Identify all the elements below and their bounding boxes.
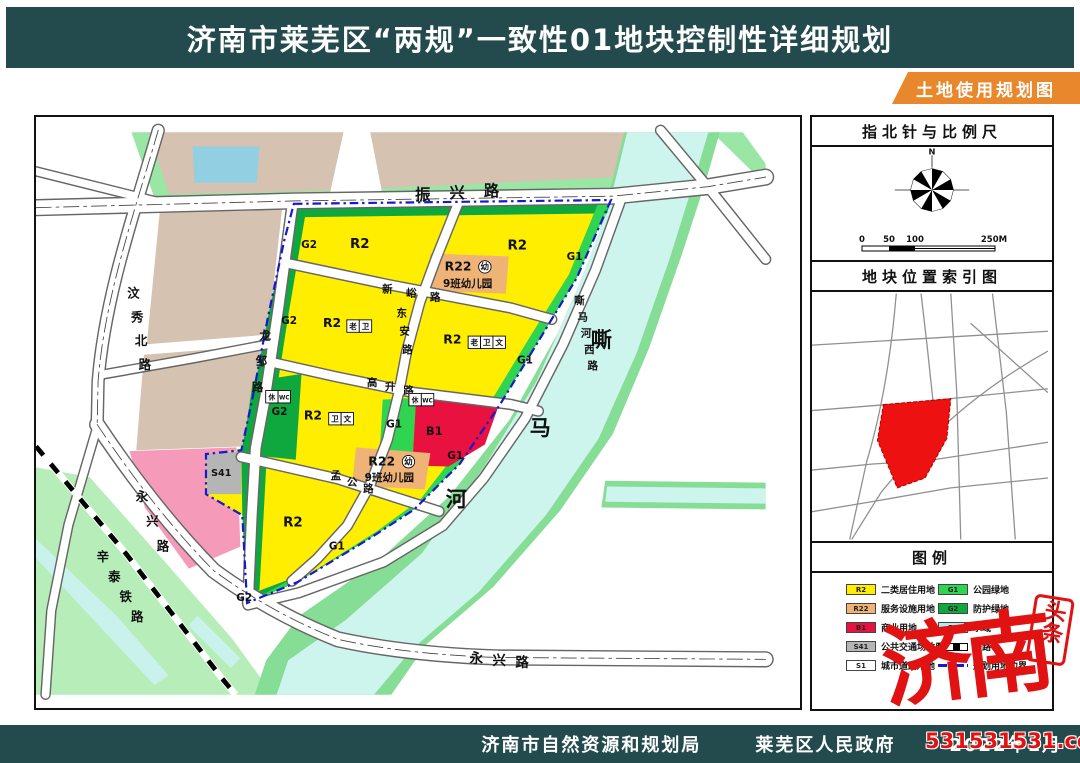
map-canvas: 振兴路汶秀北路龙邹路新峪路东安路高升路孟公路嘶马河西路永兴路永兴路辛泰铁路嘶马河…	[36, 117, 800, 708]
legend-column-right: G1公园绿地G2防护绿地E1水域铁路规划用地边界	[938, 583, 1027, 672]
road-name-char: 北	[135, 333, 148, 348]
zone-label: 河	[446, 487, 467, 512]
title-banner: 济南市莱芜区“两规”一致性01地块控制性详细规划	[6, 7, 1074, 68]
legend-swatch: S41	[846, 641, 876, 652]
facility-icon-text: 卫	[331, 415, 339, 424]
zone-label: G2	[281, 315, 297, 327]
zone-label: 9班幼儿园	[443, 277, 492, 290]
road-name-char: 马	[577, 311, 588, 323]
zone-label: 马	[530, 415, 551, 440]
facility-icon-text: 老	[349, 321, 357, 331]
road-name-char: 东	[397, 307, 408, 320]
footer-agency-right: 莱芜区人民政府	[755, 731, 895, 757]
zone-label: R2	[350, 237, 370, 252]
pond-water	[193, 147, 260, 183]
road-name-char: 汶	[127, 285, 140, 300]
north-label: N	[929, 147, 936, 156]
planning-map-page: { "header": { "title": "济南市莱芜区“两规”一致性01地…	[0, 0, 1080, 763]
road-name-char: 嘶	[574, 294, 585, 307]
legend-item-R22: R22服务设施用地	[846, 602, 953, 615]
road-name-char: 辛	[97, 549, 109, 564]
road-name-char: 铁	[120, 589, 133, 604]
zone-label: G1	[329, 541, 345, 553]
zone-label: G1	[386, 418, 402, 430]
road-name-char: 公	[347, 477, 358, 489]
legend-item-S1: S1城市道路用地	[846, 659, 953, 672]
legend-label: 规划用地边界	[973, 659, 1027, 672]
legend-label: 二类居住用地	[881, 583, 935, 596]
road-name-char: 路	[131, 609, 144, 624]
zone-label: R2	[443, 331, 461, 346]
zone-label: S41	[211, 468, 231, 479]
road-name-char: 安	[399, 325, 410, 338]
index-site-highlight	[877, 399, 950, 488]
facility-icon-text: 文	[344, 414, 352, 424]
zone-label: R2	[323, 315, 341, 330]
road-name-char: 路	[139, 357, 152, 372]
legend-item-G2: G2防护绿地	[938, 602, 1027, 615]
legend-swatch: R22	[846, 603, 876, 614]
zone-label: B1	[426, 424, 443, 438]
road-name-char: 兴	[492, 652, 506, 669]
compass-section: N 0 50 100 250M	[812, 147, 1052, 260]
legend-swatch: G2	[938, 603, 968, 614]
road-name-char: 秀	[130, 309, 144, 324]
index-section-title: 地块位置索引图	[812, 260, 1052, 292]
zone-label: G2	[301, 239, 317, 251]
legend: R2二类居住用地R22服务设施用地B1商业用地S41公共交通场站用地S1城市道路…	[812, 573, 1052, 707]
location-index-map	[812, 292, 1052, 541]
legend-item-railway: 铁路	[938, 640, 1027, 653]
compass-rose: N	[882, 147, 982, 233]
road-name-char: 高	[367, 376, 378, 389]
footer-bar: 济南市自然资源和规划局 莱芜区人民政府 2022年1月	[0, 725, 1080, 763]
road-name-char: 路	[484, 182, 500, 200]
facility-icon-text: 休	[411, 395, 419, 404]
scale-0: 0	[859, 235, 865, 245]
facility-icon-text: 卫	[483, 338, 491, 347]
road-name-char: 路	[588, 359, 599, 372]
facility-icon-text: 文	[495, 337, 503, 347]
land-use-map: 振兴路汶秀北路龙邹路新峪路东安路高升路孟公路嘶马河西路永兴路永兴路辛泰铁路嘶马河…	[34, 115, 802, 710]
zone-label: R2	[283, 516, 303, 531]
road-name-char: 龙	[258, 328, 271, 342]
road-name-char: 新	[382, 283, 393, 296]
facility-icon-text: 幼	[481, 261, 490, 273]
facility-icon-text: 休	[268, 393, 276, 402]
sidebar: 指北针与比例尺 N 0 50 100 250M 地块位置索引图	[810, 115, 1054, 711]
zone-label: R22	[368, 454, 395, 469]
road-name-char: 兴	[146, 514, 159, 529]
road-name-char: 路	[402, 343, 413, 356]
road-name-char: 路	[157, 538, 170, 553]
scale-50: 50	[883, 235, 895, 245]
legend-column-left: R2二类居住用地R22服务设施用地B1商业用地S41公共交通场站用地S1城市道路…	[846, 583, 953, 672]
legend-swatch	[938, 643, 968, 651]
road-name-char: 路	[363, 482, 374, 495]
facility-icon-text: WC	[422, 398, 433, 404]
legend-item-B1: B1商业用地	[846, 621, 953, 634]
scale-bar: 0 50 100 250M	[842, 233, 1022, 259]
legend-label: 商业用地	[881, 621, 917, 634]
legend-label: 公园绿地	[973, 583, 1009, 596]
legend-label: 铁路	[973, 640, 991, 653]
road-name-char: 永	[470, 650, 484, 667]
scale-250: 250M	[981, 235, 1007, 245]
legend-item-G1: G1公园绿地	[938, 583, 1027, 596]
facility-icon-text: 卫	[362, 322, 370, 331]
zone-label: G2	[236, 592, 252, 604]
zone-label: R22	[445, 259, 472, 274]
road-name-char: 邹	[255, 354, 268, 368]
legend-swatch: B1	[846, 622, 876, 633]
legend-item-E1: E1水域	[938, 621, 1027, 634]
zone-label: G1	[567, 251, 583, 263]
zone-label: G1	[447, 450, 463, 462]
road-name-char: 振	[415, 186, 431, 204]
legend-label: 防护绿地	[973, 602, 1009, 615]
zone-label: 嘶	[591, 327, 612, 352]
zone-label: R2	[508, 239, 528, 254]
zone-label: G1	[517, 354, 533, 366]
road-name-char: 路	[515, 654, 529, 671]
facility-icon-text: 幼	[404, 456, 413, 468]
legend-item-boundary: 规划用地边界	[938, 659, 1027, 672]
facility-icon-text: 老	[471, 337, 479, 347]
road-name-char: 孟	[331, 470, 342, 482]
facility-icon-text: WC	[279, 396, 290, 402]
compass-section-title: 指北针与比例尺	[812, 117, 1052, 147]
footer-agency-left: 济南市自然资源和规划局	[481, 731, 701, 757]
road-name-char: 永	[135, 489, 149, 504]
legend-section-title: 图例	[812, 541, 1052, 573]
map-type-ribbon: 土地使用规划图	[892, 72, 1080, 104]
legend-swatch	[938, 664, 968, 667]
legend-item-S41: S41公共交通场站用地	[846, 640, 953, 653]
legend-label: 城市道路用地	[881, 659, 935, 672]
scale-100: 100	[906, 235, 924, 245]
road-name-char: 兴	[450, 184, 465, 202]
legend-label: 水域	[973, 621, 991, 634]
legend-label: 服务设施用地	[881, 602, 935, 615]
zone-label: R2	[304, 408, 322, 423]
footer-date: 2022年1月	[949, 731, 1062, 757]
legend-swatch: E1	[938, 622, 968, 633]
legend-swatch: G1	[938, 584, 968, 595]
road-name-char: 路	[430, 290, 441, 303]
page-title: 济南市莱芜区“两规”一致性01地块控制性详细规划	[187, 17, 893, 59]
zone-label: G2	[272, 406, 288, 418]
legend-item-R2: R2二类居住用地	[846, 583, 953, 596]
legend-swatch: S1	[846, 660, 876, 671]
legend-swatch: R2	[846, 584, 876, 595]
road-name-char: 路	[252, 380, 264, 394]
road-name-char: 泰	[107, 569, 121, 584]
map-type-label: 土地使用规划图	[916, 76, 1056, 101]
zone-label: 9班幼儿园	[365, 471, 414, 484]
road-name-char: 升	[385, 380, 396, 393]
road-name-char: 峪	[406, 286, 417, 299]
